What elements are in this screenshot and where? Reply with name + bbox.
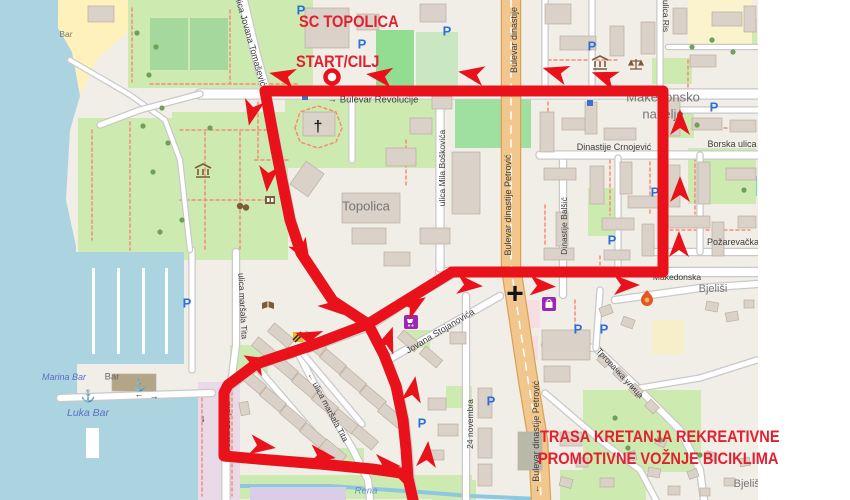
green-area <box>150 18 188 70</box>
map-text: P <box>588 39 597 54</box>
parking-icon: P <box>588 39 597 54</box>
map-text: P <box>443 24 452 39</box>
building <box>386 148 416 166</box>
unloaded-tile-area <box>758 0 850 500</box>
building <box>730 120 756 132</box>
parking-icon: P <box>358 37 367 52</box>
start-cilj-label: START/CILJ <box>296 52 379 72</box>
street-label: Bulevar dinastije <box>509 7 519 73</box>
street-label: Bar <box>59 29 72 39</box>
map-shape <box>243 204 249 210</box>
bus-stop-icon <box>587 100 593 106</box>
building <box>725 311 738 322</box>
building <box>700 488 710 496</box>
green-area <box>190 18 228 70</box>
map-text: P <box>574 322 583 337</box>
cinema-icon <box>265 196 275 204</box>
building <box>239 401 250 415</box>
building <box>705 301 718 312</box>
pier <box>92 268 95 354</box>
oneway-right-icon: → <box>150 391 159 401</box>
building <box>668 216 710 228</box>
tree <box>140 123 145 128</box>
building <box>673 8 687 34</box>
green-area <box>78 118 180 256</box>
building <box>642 224 654 256</box>
building <box>540 112 554 152</box>
oneway-down-icon: ↓ <box>201 414 206 425</box>
map-shape <box>271 198 274 202</box>
oneway-left-icon: ← <box>135 389 144 399</box>
tree <box>709 37 714 42</box>
building <box>602 218 634 230</box>
parking-icon: P <box>418 416 427 431</box>
tree <box>165 140 170 145</box>
street-label: ulica Mila Boškovića <box>437 129 447 206</box>
parking-icon: P <box>608 233 617 248</box>
street-label: Marina Bar <box>42 372 87 382</box>
building <box>726 168 756 180</box>
start-finish-marker <box>326 71 339 84</box>
map-shape <box>407 319 413 323</box>
green-area <box>416 32 458 87</box>
building <box>545 4 571 24</box>
map-text: P <box>600 322 609 337</box>
tree <box>150 169 155 174</box>
parking-icon: P <box>574 322 583 337</box>
pier <box>142 268 145 354</box>
tree <box>157 229 162 234</box>
building <box>698 162 710 204</box>
street-label: Bulevar dinastije Petrović <box>503 154 513 256</box>
street-label: Topolica <box>342 199 390 214</box>
tree <box>689 44 694 49</box>
tree <box>207 125 212 130</box>
parking-icon: P <box>487 394 496 409</box>
anchor-icon: ⚓ <box>81 389 96 403</box>
map-shape <box>237 203 243 209</box>
building <box>641 22 655 54</box>
water-area <box>20 397 214 500</box>
map-text: P <box>487 394 496 409</box>
building <box>668 486 680 495</box>
route-title-line2: PROMOTIVNE VOŽNJE BICIKLIMA <box>538 449 778 469</box>
street-label: Bjeliši <box>699 283 728 295</box>
building <box>544 168 576 180</box>
building <box>600 478 614 487</box>
map-text: P <box>183 296 192 311</box>
map-shape <box>546 302 553 308</box>
building <box>712 12 742 26</box>
tree <box>741 187 746 192</box>
map-screenshot: → Bulevar RevolucijeUlica Jovana Tomašev… <box>0 0 850 500</box>
building <box>604 128 636 140</box>
building <box>744 300 754 308</box>
building <box>410 118 432 134</box>
building <box>452 152 480 214</box>
building <box>420 228 450 244</box>
pier <box>86 428 99 458</box>
building <box>544 366 570 382</box>
building <box>604 250 630 260</box>
landuse-zone <box>652 320 684 354</box>
building <box>352 228 386 244</box>
tree <box>153 44 158 49</box>
tree <box>179 217 184 222</box>
map-text: P <box>418 416 427 431</box>
map-shape <box>267 198 270 202</box>
building <box>432 95 452 109</box>
building <box>585 102 597 134</box>
street-label: Borska ulica <box>707 139 756 149</box>
tree <box>134 30 139 35</box>
building <box>744 6 756 32</box>
pier <box>165 268 168 354</box>
tree <box>694 122 699 127</box>
tree <box>612 415 617 420</box>
map-text: P <box>710 100 719 115</box>
street-label: Dinastije Crnojević <box>577 142 652 152</box>
parking-icon: P <box>710 100 719 115</box>
street-label: Rena <box>355 486 378 497</box>
street-label: Požarevačka <box>707 237 759 247</box>
sc-topolica-label: SC TOPOLICA <box>299 12 399 32</box>
route-title-line1: TRASA KRETANJA REKREATIVNE <box>540 427 780 447</box>
building <box>542 330 590 360</box>
building <box>610 26 624 56</box>
building <box>88 6 114 22</box>
street-label: ulica Ris <box>661 0 671 32</box>
map-text: → <box>150 391 159 401</box>
street-label: Bar <box>105 372 120 383</box>
building <box>478 428 492 458</box>
building <box>690 55 716 67</box>
street-label: Dinastije Balšić <box>559 196 569 254</box>
blank-area <box>758 0 850 500</box>
tree <box>159 105 164 110</box>
shop-bag-icon <box>542 297 556 311</box>
osm-map[interactable]: → Bulevar RevolucijeUlica Jovana Tomašev… <box>0 0 850 500</box>
parking-icon: P <box>600 322 609 337</box>
building <box>620 162 632 194</box>
church-cross-icon: † <box>314 119 323 136</box>
map-text: ← <box>135 389 144 399</box>
map-shape <box>587 100 593 106</box>
tree <box>730 49 735 54</box>
building <box>478 464 492 486</box>
pier <box>117 268 120 354</box>
building <box>438 424 458 436</box>
parking-icon: P <box>443 24 452 39</box>
map-text: ↓ <box>201 414 206 425</box>
building <box>590 166 604 204</box>
map-text: ⚓ <box>81 389 96 403</box>
building <box>450 332 466 344</box>
map-text: † <box>314 119 323 136</box>
map-shape <box>408 325 410 327</box>
building <box>428 398 446 410</box>
landuse-zone <box>250 487 346 500</box>
map-shape <box>645 298 650 303</box>
building <box>420 4 446 22</box>
map-text: + <box>506 278 524 311</box>
building <box>738 216 756 228</box>
parking-icon: P <box>183 296 192 311</box>
crossing-plus-icon: + <box>506 278 524 311</box>
tree <box>146 72 151 77</box>
street-label: 24 novembra <box>465 399 475 449</box>
street-label: Luka Bar <box>67 407 110 419</box>
map-text: P <box>608 233 617 248</box>
building <box>384 252 410 266</box>
map-shape <box>412 325 414 327</box>
map-text: P <box>358 37 367 52</box>
